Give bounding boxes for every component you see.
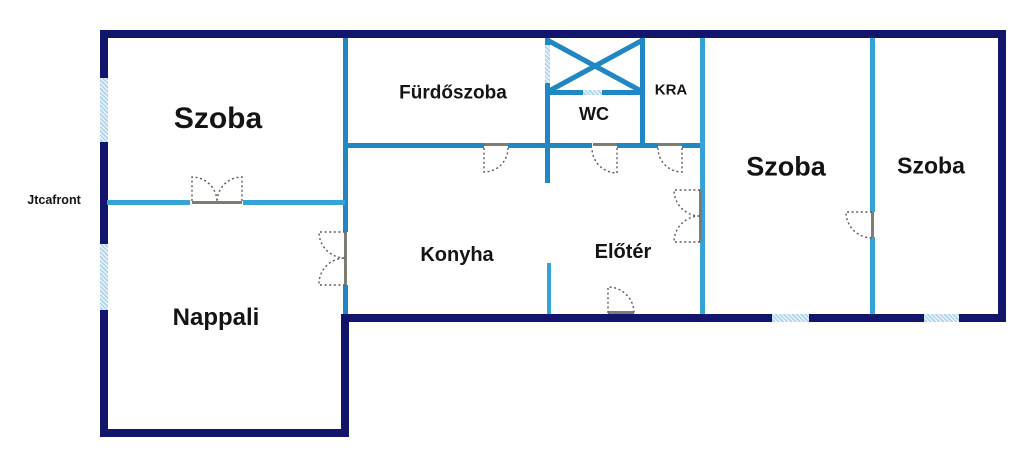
wall-szoba-nappali-1	[107, 200, 190, 205]
door-swing-szoba-szoba	[846, 212, 872, 238]
window-bottom-szoba-right	[924, 314, 959, 322]
door-swing-nappali-konyha-leaf-1	[319, 232, 345, 258]
door-opening-furdoszoba	[484, 143, 508, 146]
door-swing-entrance	[608, 287, 634, 313]
window-left-upper	[100, 78, 108, 142]
door-opening-kra	[658, 143, 682, 146]
wall-nappali-bottom	[100, 429, 348, 437]
wall-corridor-top-3	[617, 143, 658, 148]
window-wc-shaft-bottom	[583, 90, 602, 95]
window-wc-left	[545, 45, 550, 83]
room-label-kra: KRA	[655, 83, 688, 98]
door-opening-nappali-konyha	[344, 232, 347, 285]
door-opening-wc	[593, 143, 617, 146]
wall-konyha-eloter-stub	[547, 263, 551, 314]
room-label-furdoszoba: Fürdőszoba	[399, 84, 507, 103]
street-front-label: Jtcafront	[27, 194, 80, 207]
window-left-lower	[100, 244, 108, 310]
wall-nappali-right	[341, 314, 349, 437]
door-swing-kra	[658, 148, 682, 172]
door-swing-szoba-left-leaf-1	[192, 177, 217, 202]
door-opening-szoba-nappali	[192, 201, 242, 204]
room-label-wc: WC	[579, 105, 609, 123]
wall-szoba-szoba-upper	[870, 38, 875, 212]
wall-szoba-nappali-2	[243, 200, 345, 205]
shaft-cross-line-1	[549, 41, 641, 91]
shaft-cross-line-2	[549, 41, 641, 91]
room-label-szoba-left: Szoba	[174, 104, 262, 134]
door-swing-szoba-left-leaf-2	[217, 177, 242, 202]
door-swing-eloter-szoba-leaf-2	[674, 216, 700, 242]
wall-konyha-left-lower	[343, 285, 348, 314]
wall-outer-top	[100, 30, 1006, 38]
room-label-nappali: Nappali	[173, 306, 260, 330]
door-swing-furdoszoba	[484, 148, 508, 172]
room-label-konyha: Konyha	[420, 245, 493, 265]
window-bottom-szoba-middle	[772, 314, 809, 322]
door-opening-entrance	[608, 311, 634, 314]
door-swing-nappali-konyha-leaf-2	[319, 258, 345, 285]
wall-outer-bottom-right	[345, 314, 1006, 322]
door-swing-eloter-szoba-leaf-1	[674, 190, 700, 216]
wall-corridor-top-1	[345, 143, 484, 148]
floor-plan: Szoba Fürdőszoba WC KRA Szoba Szoba Kony…	[0, 0, 1024, 463]
wall-szoba-szoba-lower	[870, 237, 875, 314]
room-label-eloter: Előtér	[595, 242, 652, 262]
door-opening-eloter-szoba	[699, 190, 702, 242]
room-label-szoba-right: Szoba	[897, 155, 965, 178]
door-swing-wc	[592, 148, 617, 173]
wall-corridor-top-4	[682, 143, 702, 148]
wall-eloter-szoba	[700, 38, 705, 314]
door-opening-szoba-szoba	[871, 212, 874, 237]
wall-corridor-top-2	[508, 143, 592, 148]
wall-outer-right	[998, 30, 1006, 322]
room-label-szoba-middle: Szoba	[746, 154, 826, 181]
